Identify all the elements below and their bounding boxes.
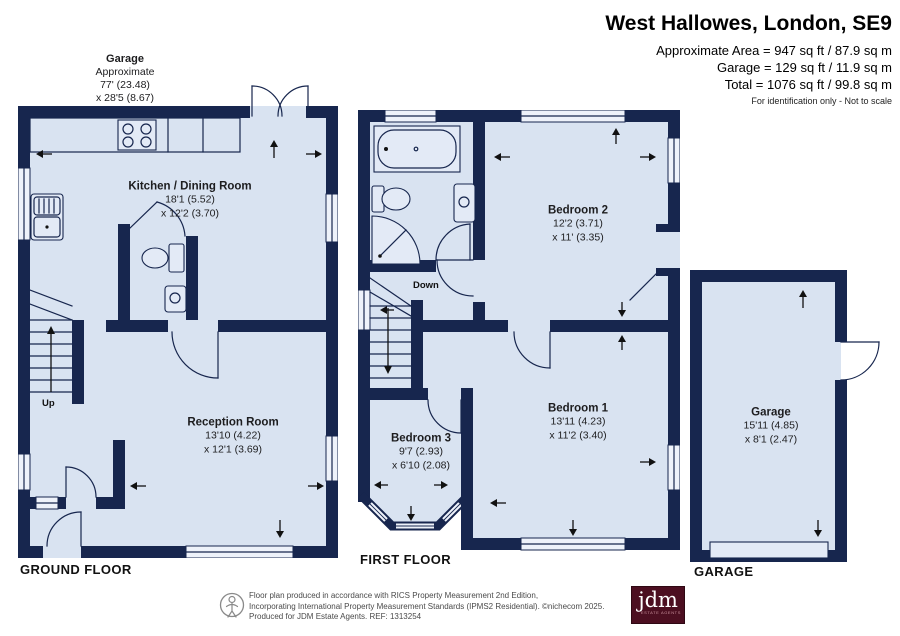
stairs-down-label: Down bbox=[413, 280, 439, 291]
room-label-bedroom2: Bedroom 2 12'2 (3.71) x 11' (3.35) bbox=[548, 204, 608, 245]
garage-floor-label: GARAGE bbox=[694, 564, 753, 579]
room-label-reception: Reception Room 13'10 (4.22) x 12'1 (3.69… bbox=[187, 416, 278, 457]
sink-icon bbox=[31, 194, 63, 240]
room-label-garage: Garage 15'11 (4.85) x 8'1 (2.47) bbox=[744, 406, 799, 447]
approx-area-line: Approximate Area = 947 sq ft / 87.9 sq m bbox=[605, 42, 892, 59]
garage-door bbox=[710, 542, 828, 558]
page-title: West Hallowes, London, SE9 bbox=[605, 12, 892, 36]
basin-icon-first bbox=[454, 184, 475, 222]
footer-text: Floor plan produced in accordance with R… bbox=[249, 591, 604, 623]
jdm-logo: jdm ESTATE AGENTS bbox=[631, 586, 685, 624]
basin-icon bbox=[165, 286, 186, 312]
room-label-bedroom3: Bedroom 3 9'7 (2.93) x 6'10 (2.08) bbox=[391, 432, 451, 473]
stairs-up-label: Up bbox=[42, 398, 55, 409]
ground-floor-plan bbox=[18, 64, 338, 558]
total-area-line: Total = 1076 sq ft / 99.8 sq m bbox=[605, 76, 892, 93]
room-label-bedroom1: Bedroom 1 13'11 (4.23) x 11'2 (3.40) bbox=[548, 402, 608, 443]
bath-icon bbox=[374, 126, 460, 172]
door-arc-garage bbox=[841, 342, 879, 380]
footer-line1: Floor plan produced in accordance with R… bbox=[249, 591, 604, 602]
hob-icon bbox=[118, 120, 156, 150]
ground-floor-label: GROUND FLOOR bbox=[20, 562, 132, 577]
first-floor-plan bbox=[358, 110, 680, 553]
disclaimer: For identification only - Not to scale bbox=[605, 96, 892, 106]
garage-area-line: Garage = 129 sq ft / 11.9 sq m bbox=[605, 59, 892, 76]
footer-line2: Incorporating International Property Mea… bbox=[249, 602, 604, 613]
room-label-kitchen: Kitchen / Dining Room 18'1 (5.52) x 12'2… bbox=[128, 180, 251, 221]
header: West Hallowes, London, SE9 Approximate A… bbox=[605, 12, 892, 106]
floorplan-page: West Hallowes, London, SE9 Approximate A… bbox=[0, 0, 900, 636]
toilet-icon-first bbox=[372, 186, 410, 212]
first-floor-label: FIRST FLOOR bbox=[360, 552, 451, 567]
footer-line3: Produced for JDM Estate Agents. REF: 131… bbox=[249, 612, 604, 623]
person-icon bbox=[219, 589, 247, 623]
